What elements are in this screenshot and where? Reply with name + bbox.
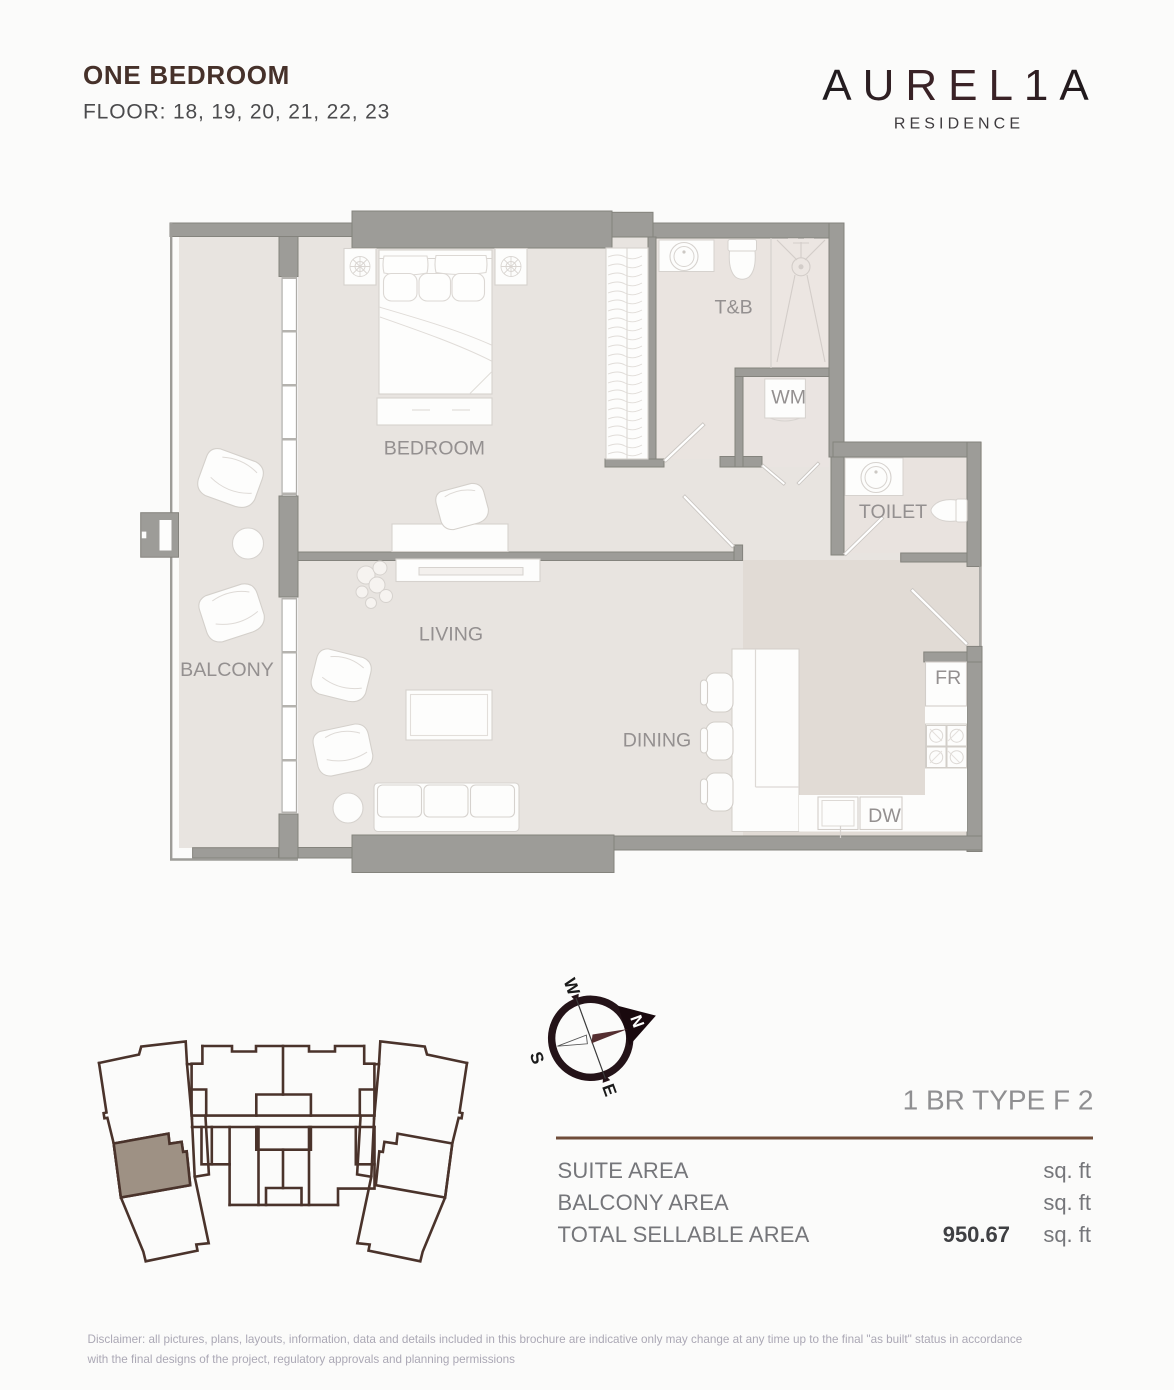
svg-text:Disclaimer: all pictures, plan: Disclaimer: all pictures, plans, layouts… [88, 1333, 1023, 1346]
svg-text:BALCONY: BALCONY [180, 659, 274, 681]
svg-text:E: E [598, 1081, 621, 1099]
svg-text:RESIDENCE: RESIDENCE [894, 116, 1024, 133]
svg-text:950.67: 950.67 [943, 1222, 1010, 1247]
svg-text:TOTAL SELLABLE AREA: TOTAL SELLABLE AREA [558, 1222, 810, 1247]
svg-text:BALCONY AREA: BALCONY AREA [558, 1190, 730, 1215]
svg-text:WM: WM [771, 387, 806, 409]
svg-text:AUREL1A: AUREL1A [822, 61, 1100, 110]
svg-text:ONE BEDROOM: ONE BEDROOM [83, 60, 290, 90]
svg-text:sq. ft: sq. ft [1043, 1158, 1091, 1183]
svg-text:FLOOR: 18, 19, 20, 21, 22, 23: FLOOR: 18, 19, 20, 21, 22, 23 [83, 101, 390, 124]
svg-text:FR: FR [935, 667, 961, 689]
svg-text:with the final designs of the: with the final designs of the project, r… [87, 1353, 516, 1366]
svg-text:sq. ft: sq. ft [1043, 1190, 1091, 1215]
svg-text:LIVING: LIVING [419, 624, 483, 646]
svg-text:DINING: DINING [623, 729, 692, 751]
svg-text:T&B: T&B [715, 297, 753, 319]
svg-text:1 BR TYPE F 2: 1 BR TYPE F 2 [903, 1085, 1094, 1116]
svg-text:TOILET: TOILET [859, 501, 927, 523]
svg-text:sq. ft: sq. ft [1043, 1222, 1091, 1247]
svg-text:SUITE AREA: SUITE AREA [558, 1158, 689, 1183]
svg-text:W: W [560, 975, 585, 998]
svg-text:BEDROOM: BEDROOM [384, 437, 485, 459]
svg-text:DW: DW [868, 805, 901, 827]
svg-text:S: S [526, 1049, 549, 1067]
